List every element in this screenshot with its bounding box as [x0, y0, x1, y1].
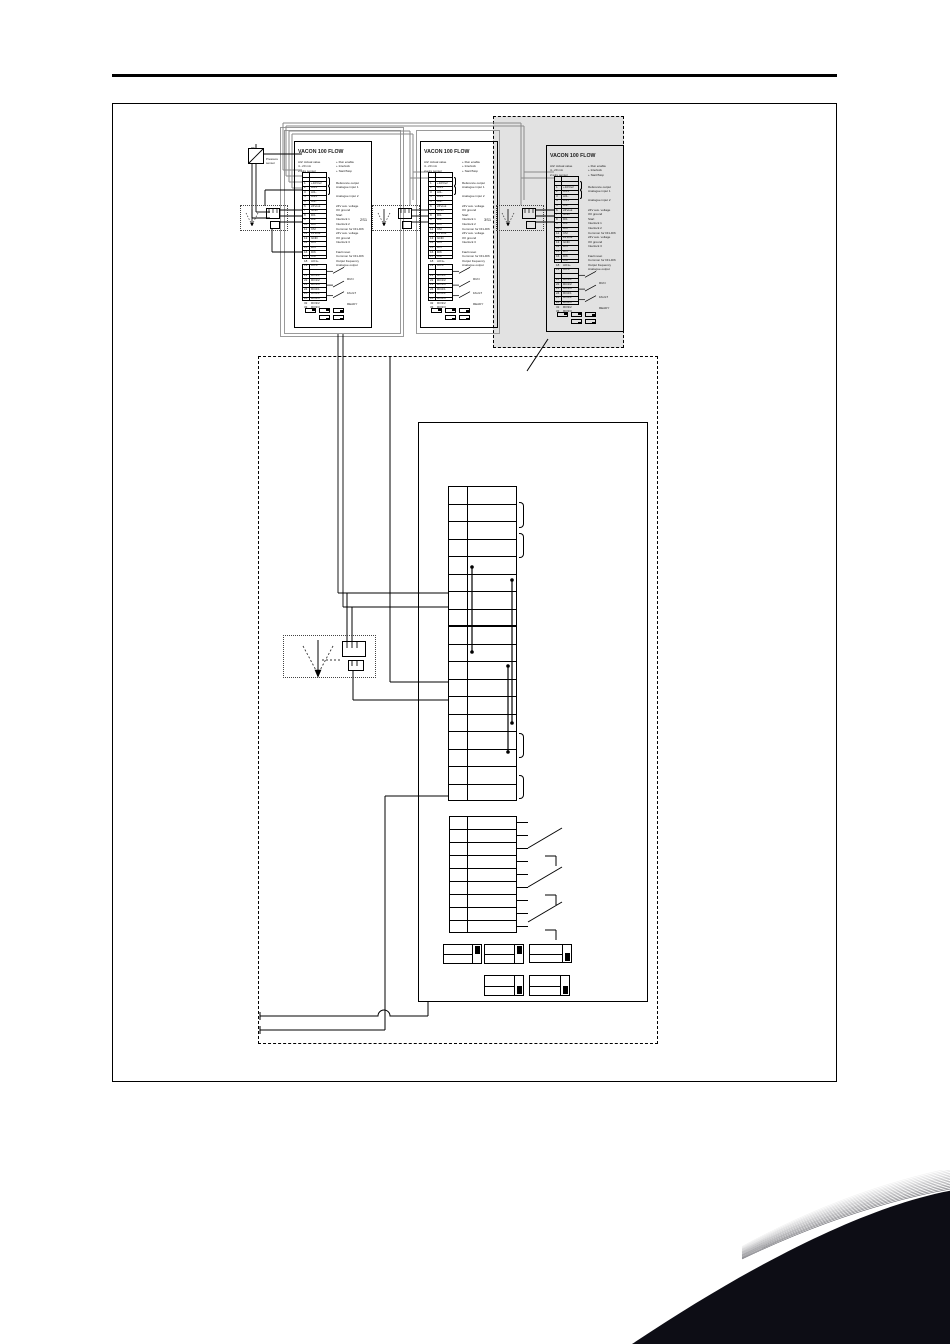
annotation-bracket	[328, 186, 330, 195]
terminal-desc: Analogue output	[588, 259, 668, 268]
dip-pos	[466, 310, 469, 312]
strip-divider	[467, 486, 468, 801]
dip-pos	[438, 309, 441, 311]
strip-row-line	[448, 539, 517, 540]
drive-title: VACON 100 FLOW	[424, 143, 504, 152]
relay-group-label: FAULT	[599, 287, 679, 296]
dip-pos	[517, 946, 522, 954]
dip-line	[529, 986, 560, 987]
dip-pos	[564, 313, 567, 315]
strip-row-line	[448, 714, 517, 715]
relay-row-line	[449, 881, 517, 882]
grid-line	[561, 268, 562, 305]
relay-group-label: FAULT	[347, 283, 427, 292]
sensor-ref-label: 2S1	[360, 211, 440, 220]
dip-divider	[562, 944, 563, 963]
dip-pos	[452, 318, 455, 320]
annotation-bracket	[454, 177, 456, 186]
annotation-bracket	[328, 177, 330, 186]
dip-pos	[517, 986, 522, 994]
dip-pos	[563, 986, 568, 994]
relay-row-line	[449, 842, 517, 843]
relay-group-label: RUN	[473, 269, 553, 278]
relay-row-line	[449, 907, 517, 908]
detail-bracket	[519, 775, 524, 799]
drive-note: + Start/Stop	[588, 165, 668, 174]
strip-row-line	[448, 609, 517, 610]
transducer-top-label: PT	[251, 138, 331, 147]
strip-row-line	[448, 556, 517, 557]
dip-pos	[326, 318, 329, 320]
relay-divider	[467, 816, 468, 933]
relay-row-line	[449, 855, 517, 856]
relay-group-label: READY	[347, 294, 427, 303]
wiring-diagram: VACON 100 FLOWAI2: Actual value4...20 mA…	[0, 0, 950, 1344]
dip-pos	[466, 318, 469, 320]
detail-relay-table	[449, 816, 517, 933]
relay-row-line	[449, 868, 517, 869]
corner-swoosh	[624, 1170, 950, 1344]
relay-group-label: READY	[473, 294, 553, 303]
dip-pos	[578, 322, 581, 324]
relay-group-label: RUN	[347, 269, 427, 278]
drive-note: + Start/Stop	[336, 161, 416, 170]
swoosh-shape	[632, 1190, 950, 1344]
strip-heavy-divider	[448, 625, 517, 627]
dip-pos	[578, 313, 581, 315]
strip-row-line	[448, 591, 517, 592]
annotation-bracket	[580, 190, 582, 199]
sensor-connector	[266, 208, 280, 219]
detail-bracket	[519, 502, 524, 528]
dip-pos	[592, 322, 595, 324]
detail-bracket	[519, 533, 524, 558]
drive-title: VACON 100 FLOW	[550, 147, 630, 156]
sensor-ref-label: 3S1	[484, 211, 564, 220]
drive-note: + Start/Stop	[462, 161, 542, 170]
dip-pos	[340, 318, 343, 320]
dip-divider	[560, 975, 561, 996]
terminal-desc: Analogue output	[462, 255, 542, 264]
relay-group-label: READY	[599, 298, 679, 307]
strip-row-line	[448, 679, 517, 680]
transducer-side-label: sensor	[266, 153, 346, 162]
grid-line	[309, 172, 310, 259]
detail-connector	[342, 641, 366, 657]
grid-line	[309, 264, 310, 301]
relay-group-label: RUN	[599, 273, 679, 282]
sensor-connector	[402, 221, 412, 229]
dip-divider	[514, 944, 515, 964]
dip-pos	[592, 314, 595, 316]
annotation-bracket	[580, 181, 582, 190]
strip-row-line	[448, 504, 517, 505]
annotation-bracket	[454, 186, 456, 195]
strip-row-line	[448, 784, 517, 785]
detail-connector	[348, 660, 364, 671]
strip-row-line	[448, 644, 517, 645]
strip-row-line	[448, 731, 517, 732]
strip-row-line	[448, 696, 517, 697]
relay-row-line	[449, 829, 517, 830]
strip-row-line	[448, 521, 517, 522]
strip-row-line	[448, 749, 517, 750]
relay-group-label: FAULT	[473, 283, 553, 292]
dip-divider	[514, 975, 515, 996]
relay-row-line	[449, 894, 517, 895]
sensor-connector	[526, 221, 536, 229]
grid-line	[435, 264, 436, 301]
sensor-connector	[270, 221, 280, 229]
manual-page: VACON 100 FLOWAI2: Actual value4...20 mA…	[0, 0, 950, 1344]
dip-line	[529, 954, 562, 955]
dip-line	[443, 954, 472, 955]
strip-row-line	[448, 766, 517, 767]
pressure-transducer-icon	[248, 148, 264, 164]
detail-bracket	[519, 733, 524, 758]
dip-pos	[312, 309, 315, 311]
strip-row-line	[448, 574, 517, 575]
dip-line	[484, 954, 514, 955]
relay-row-line	[449, 920, 517, 921]
dip-divider	[472, 944, 473, 964]
sensor-box	[240, 205, 288, 231]
dip-pos	[565, 953, 570, 961]
dip-line	[484, 986, 514, 987]
dip-pos	[475, 946, 480, 954]
dip-pos	[340, 310, 343, 312]
dip-pos	[452, 309, 455, 311]
dip-pos	[326, 309, 329, 311]
terminal-desc: Analogue output	[336, 255, 416, 264]
strip-row-line	[448, 661, 517, 662]
